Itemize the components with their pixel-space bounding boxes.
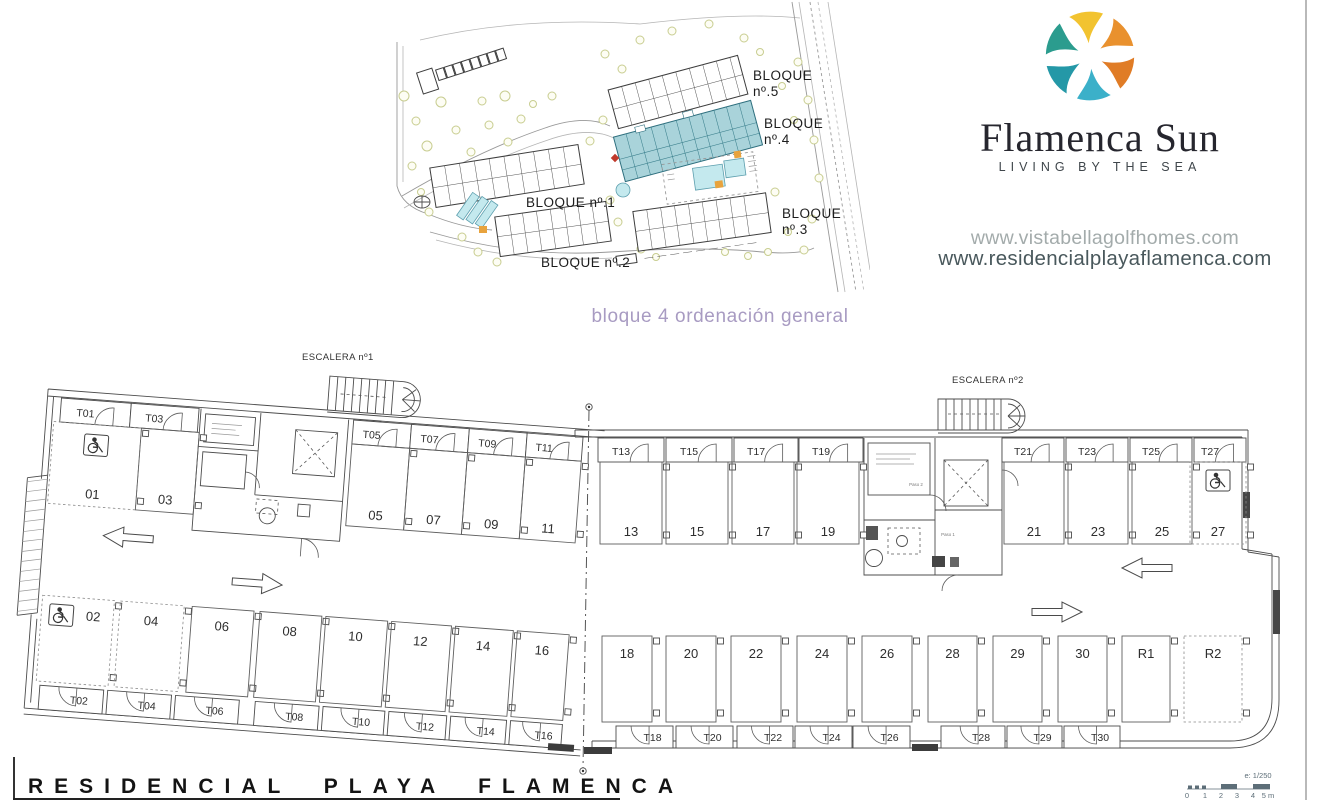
svg-text:4: 4 <box>1251 791 1255 800</box>
block3-label: BLOQUE <box>782 206 841 221</box>
svg-text:5 m: 5 m <box>1262 791 1275 800</box>
staircase-2 <box>938 399 1025 433</box>
brochure-page: BLOQUE nº.5 BLOQUE nº.4 BLOQUE nº.3 BLOQ… <box>0 0 1320 800</box>
hatch-segment <box>912 744 938 751</box>
storage-room-label: T11 <box>535 442 553 455</box>
parking-space-label: 06 <box>214 618 230 634</box>
storage-room-label: T29 <box>1033 732 1051 744</box>
direction-arrow-right <box>1032 602 1082 622</box>
column-marker <box>1244 710 1250 716</box>
column-marker <box>180 680 186 686</box>
parking-space-label: 30 <box>1075 646 1089 661</box>
column-marker <box>200 435 206 441</box>
storage-room <box>799 438 863 462</box>
parking-space-label: 10 <box>348 628 364 644</box>
svg-text:0: 0 <box>1185 791 1189 800</box>
hatch-segment <box>584 747 612 754</box>
column-marker <box>1130 532 1136 538</box>
parking-space-label: 26 <box>880 646 894 661</box>
site-garage-strip <box>417 45 509 94</box>
parking-space-label: 18 <box>620 646 634 661</box>
storage-room <box>666 438 732 462</box>
column-marker <box>142 430 148 436</box>
parking-space-label: 16 <box>534 642 550 658</box>
parking-space-label: 23 <box>1091 524 1105 539</box>
wheelchair-icon <box>48 604 74 627</box>
direction-arrow-right <box>231 571 282 595</box>
parking-space-label: 17 <box>756 524 770 539</box>
direction-arrow-left <box>103 526 154 550</box>
storage-room-label: T26 <box>880 732 898 744</box>
block4-label: nº.4 <box>764 132 790 147</box>
hatch-segment <box>548 743 574 752</box>
column-marker <box>783 638 789 644</box>
wall-opening <box>1273 590 1280 634</box>
svg-text:3: 3 <box>1235 791 1239 800</box>
parking-space-label: 24 <box>815 646 829 661</box>
column-marker <box>411 450 417 456</box>
column-marker <box>1248 532 1254 538</box>
pinwheel-icon <box>1040 2 1140 110</box>
storage-room-label: T10 <box>352 716 371 729</box>
column-marker <box>1244 638 1250 644</box>
column-marker <box>1066 464 1072 470</box>
column-marker <box>718 710 724 716</box>
block5-label: nº.5 <box>753 84 779 99</box>
storage-room-label: T09 <box>478 437 497 450</box>
column-marker <box>914 710 920 716</box>
storage-room <box>1066 438 1128 462</box>
parking-space-label: 25 <box>1155 524 1169 539</box>
storage-room-label: T07 <box>420 433 439 446</box>
parking-space-label: 05 <box>368 507 384 523</box>
column-marker <box>577 531 583 537</box>
storage-room-label: T13 <box>612 446 630 458</box>
column-marker <box>1109 638 1115 644</box>
storage-room-label: T19 <box>812 446 830 458</box>
column-marker <box>1194 532 1200 538</box>
column-marker <box>654 638 660 644</box>
parking-space <box>36 595 114 686</box>
column-marker <box>654 710 660 716</box>
column-marker <box>1044 638 1050 644</box>
parking-space-label: 28 <box>945 646 959 661</box>
column-marker <box>195 502 201 508</box>
wheelchair-icon <box>83 434 109 457</box>
titleblock-divider <box>13 757 15 800</box>
storage-room-label: T18 <box>643 732 661 744</box>
svg-text:1: 1 <box>1203 791 1207 800</box>
website-url-secondary: www.residencialplayaflamenca.com <box>920 247 1290 271</box>
wall-opening <box>1243 492 1250 518</box>
column-marker <box>255 613 261 619</box>
flamenca-sun-logo <box>1036 2 1144 110</box>
micro-label: Paso 2 <box>909 482 923 487</box>
stair-core-2: Paso 2 Paso 1 <box>864 438 1018 591</box>
storage-room-label: T15 <box>680 446 698 458</box>
column-marker <box>526 459 532 465</box>
parking-space-label: 03 <box>157 492 173 508</box>
project-title: RESIDENCIAL PLAYA FLAMENCA <box>28 775 684 799</box>
column-marker <box>406 518 412 524</box>
column-marker <box>1044 710 1050 716</box>
column-marker <box>849 710 855 716</box>
column-marker <box>570 637 576 643</box>
column-marker <box>1066 532 1072 538</box>
left-wing: T01T03T05T07T09T110103050709110204060810… <box>10 354 607 756</box>
storage-room <box>410 424 470 452</box>
plan-caption: bloque 4 ordenación general <box>520 306 920 328</box>
staircase-1 <box>327 376 421 419</box>
storage-room <box>468 429 528 457</box>
column-marker <box>1109 710 1115 716</box>
svg-text:2: 2 <box>1219 791 1223 800</box>
parking-space-label: 12 <box>413 633 429 649</box>
parking-space-label: 15 <box>690 524 704 539</box>
titleblock-rule <box>13 798 620 800</box>
column-marker <box>979 638 985 644</box>
parking-space-label: 22 <box>749 646 763 661</box>
column-marker <box>730 532 736 538</box>
storage-room-label: T05 <box>362 429 381 442</box>
storage-room-label: T21 <box>1014 446 1032 458</box>
storage-room-label: T04 <box>137 700 156 713</box>
storage-room <box>734 438 798 462</box>
scale-ratio: e: 1/250 <box>1244 771 1271 780</box>
right-wing: Paso 2 Paso 1 T13T15T17T1913151719T21T23… <box>548 399 1280 754</box>
storage-room-label: T20 <box>703 732 721 744</box>
column-marker <box>1130 464 1136 470</box>
parking-space-label: 02 <box>85 609 101 625</box>
parking-space-label: R2 <box>1205 646 1222 661</box>
column-marker <box>1172 710 1178 716</box>
column-marker <box>979 710 985 716</box>
fountain-icon <box>414 196 430 208</box>
column-marker <box>718 638 724 644</box>
storage-room <box>1130 438 1192 462</box>
storage-room <box>598 438 664 462</box>
column-marker <box>1172 638 1178 644</box>
stair-core-1 <box>191 409 349 560</box>
column-marker <box>796 532 802 538</box>
parking-space-label: 11 <box>541 520 556 536</box>
site-plan: BLOQUE nº.5 BLOQUE nº.4 BLOQUE nº.3 BLOQ… <box>380 0 870 300</box>
column-marker <box>250 685 256 691</box>
brand-tagline: LIVING BY THE SEA <box>950 160 1250 174</box>
column-marker <box>849 638 855 644</box>
column-marker <box>521 527 527 533</box>
block3-label: nº.3 <box>782 222 808 237</box>
column-marker <box>664 532 670 538</box>
column-marker <box>468 455 474 461</box>
wheelchair-icon <box>1206 470 1230 491</box>
storage-room-label: T06 <box>205 705 224 718</box>
column-marker <box>914 638 920 644</box>
storage-room <box>525 433 583 461</box>
micro-label: Paso 1 <box>941 532 955 537</box>
page-edge-rule <box>1305 0 1307 800</box>
parking-space-label: 14 <box>475 638 491 654</box>
parking-space-label: 04 <box>143 613 159 629</box>
column-marker <box>463 523 469 529</box>
parking-space-label: 08 <box>282 623 298 639</box>
storage-room-label: T22 <box>764 732 782 744</box>
block5-label: BLOQUE <box>753 68 812 83</box>
column-marker <box>115 603 121 609</box>
storage-room-label: T25 <box>1142 446 1160 458</box>
storage-room <box>1002 438 1064 462</box>
column-marker <box>664 464 670 470</box>
column-marker <box>1194 464 1200 470</box>
storage-room-label: T02 <box>69 695 88 708</box>
block2-label: BLOQUE nº.2 <box>541 255 630 270</box>
storage-room-label: T30 <box>1091 732 1109 744</box>
column-marker <box>796 464 802 470</box>
storage-room-label: T23 <box>1078 446 1096 458</box>
parking-space-label: R1 <box>1138 646 1155 661</box>
storage-room-label: T17 <box>747 446 765 458</box>
parking-space-label: 27 <box>1211 524 1225 539</box>
parking-space-label: 01 <box>85 486 101 502</box>
column-marker <box>185 608 191 614</box>
column-marker <box>861 464 867 470</box>
parking-space-label: 20 <box>684 646 698 661</box>
column-marker <box>783 710 789 716</box>
storage-room <box>352 420 412 448</box>
storage-room-label: T28 <box>972 732 990 744</box>
parking-space-label: 19 <box>821 524 835 539</box>
block4-label: BLOQUE <box>764 116 823 131</box>
column-marker <box>861 532 867 538</box>
column-marker <box>110 674 116 680</box>
column-marker <box>137 498 143 504</box>
storage-room-label: T03 <box>145 412 164 425</box>
garage-floor-plan: T01T03T05T07T09T110103050709110204060810… <box>0 340 1320 800</box>
block1-label: BLOQUE nº.1 <box>526 195 615 210</box>
column-marker <box>565 709 571 715</box>
column-marker <box>730 464 736 470</box>
direction-arrow-left <box>1122 558 1172 578</box>
parking-space-label: 13 <box>624 524 638 539</box>
storage-room-label: T01 <box>76 407 95 420</box>
escalera1-label: ESCALERA nº1 <box>302 352 374 363</box>
storage-room-label: T24 <box>822 732 840 744</box>
parking-space-label: 09 <box>483 516 499 532</box>
escalera2-label: ESCALERA nº2 <box>952 375 1024 386</box>
parking-space-label: 21 <box>1027 524 1041 539</box>
brand-name: Flamenca Sun <box>950 114 1250 161</box>
storage-room-label: T08 <box>285 711 304 724</box>
scale-bar: e: 1/250 0 1 2 3 4 5 m <box>1185 771 1274 800</box>
parking-space-label: 29 <box>1010 646 1024 661</box>
parking-space-label: 07 <box>426 512 442 528</box>
column-marker <box>1248 464 1254 470</box>
